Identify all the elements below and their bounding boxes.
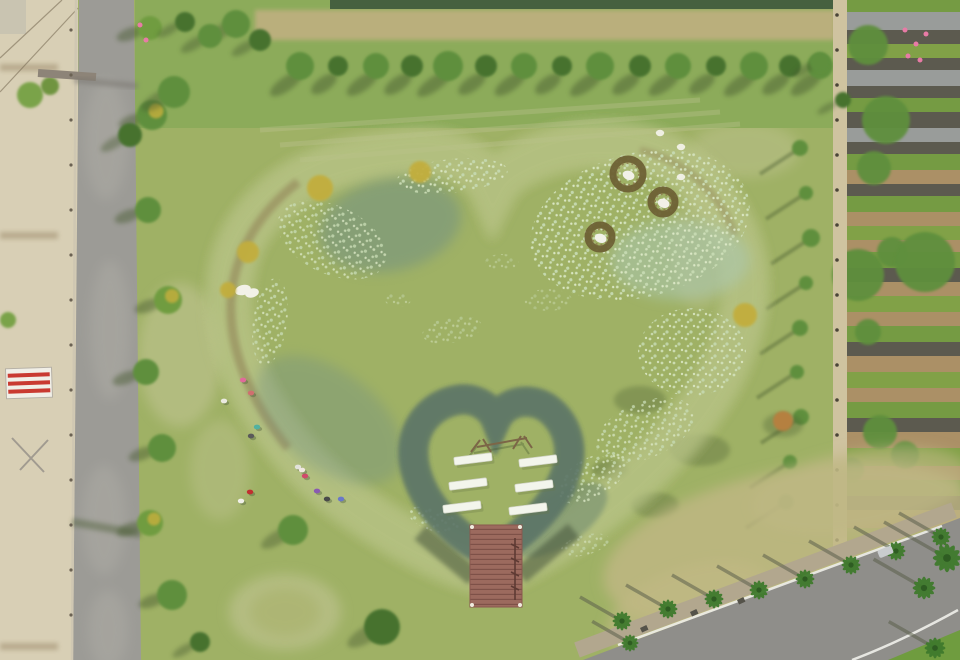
farm-tree [857,151,891,185]
crop-row [846,70,960,86]
yellow-tree [220,282,236,298]
post [835,13,839,17]
crop-row [846,212,960,226]
flower [924,32,929,37]
flower [144,38,149,43]
post [835,188,839,192]
crop-row [846,342,960,356]
tree [433,51,463,81]
person [248,391,254,396]
person [247,490,253,495]
crop-row [846,184,960,196]
post [835,153,839,157]
farm-tree [848,25,888,65]
fence-row [0,232,58,239]
tree [158,76,190,108]
tree [783,455,797,469]
person [254,425,260,430]
yellow-tree [307,175,333,201]
tree [799,186,813,200]
flower [914,42,919,47]
tree [198,24,222,48]
crop-row [846,86,960,98]
red-dock [470,525,522,607]
tree [552,56,572,76]
white-bird [677,144,685,150]
lily-patch [485,254,519,270]
farm-tree [895,232,955,292]
post [69,298,72,301]
post [69,388,72,391]
post [835,363,839,367]
post [835,328,839,332]
crop-row [846,402,960,418]
tree [190,632,210,652]
tree [118,123,142,147]
yellow-tree [409,161,431,183]
tree [475,55,497,77]
post [835,258,839,262]
lily-patch [385,293,411,307]
tree [790,365,804,379]
person [314,489,320,494]
tree [328,56,348,76]
canal [330,0,835,9]
post [69,433,72,436]
yellow-foliage [148,513,161,526]
post [69,28,72,31]
yellow-tree [237,241,259,263]
tree [175,12,195,32]
person [240,378,246,383]
person [299,468,305,473]
crop-row [846,196,960,212]
striped-sign [5,367,52,399]
crop-row [846,226,960,240]
dry-grass-ring [250,588,320,636]
post [69,343,72,346]
tree [278,515,308,545]
flower [906,54,911,59]
white-bird [656,130,664,136]
bush [133,359,159,385]
post [69,208,72,211]
lot-bush [41,77,59,95]
tree [586,52,614,80]
lily-patch [638,308,746,396]
post [69,478,72,481]
tree [792,320,808,336]
tree [363,53,389,79]
person [221,399,227,404]
post [835,223,839,227]
tree [740,52,768,80]
flower [918,58,923,63]
tree [799,276,813,290]
post [835,398,839,402]
crop-row [846,356,960,372]
tree [706,56,726,76]
farm-tree [863,415,897,449]
person [338,497,344,502]
farm-tree [855,319,881,345]
farm-tree [862,96,910,144]
tree [792,140,808,156]
post [835,433,839,437]
tree [802,229,820,247]
post [69,568,72,571]
bush [135,197,161,223]
lot-bush [17,82,43,108]
crop-row [846,388,960,402]
person [238,499,244,504]
gate-bar [38,73,96,77]
post [835,118,839,122]
bush [157,580,187,610]
lot-bush [0,312,16,328]
tree [629,55,651,77]
post [69,73,72,76]
aerial-photo-canvas [0,0,960,660]
white-bird [677,174,685,180]
tree [364,609,400,645]
flower [903,28,908,33]
yellow-tree [733,303,757,327]
aerial-photo [0,0,960,660]
bush [148,434,176,462]
tree [665,53,691,79]
fence-row [0,643,58,650]
shed-roof [0,0,26,34]
dry-patch [190,420,250,520]
crop-row [846,372,960,388]
post [835,83,839,87]
yellow-foliage [165,289,179,303]
post [69,253,72,256]
west-sandy-lot [0,0,78,660]
post [69,118,72,121]
post [835,48,839,52]
orange-tree [773,411,793,431]
tree [511,53,537,79]
crop-row [846,0,960,12]
tree [810,52,830,72]
tree [286,52,314,80]
tree [401,55,423,77]
post [69,163,72,166]
person [302,474,308,479]
post [69,523,72,526]
tree [249,29,271,51]
crop-row [846,142,960,154]
post [835,293,839,297]
flower [138,23,143,28]
crop-row [846,418,960,432]
lily-patch [524,289,572,311]
tree [835,92,851,108]
person [324,497,330,502]
person [248,434,254,439]
dirt-strip [255,10,835,40]
post [69,613,72,616]
tree [222,10,250,38]
